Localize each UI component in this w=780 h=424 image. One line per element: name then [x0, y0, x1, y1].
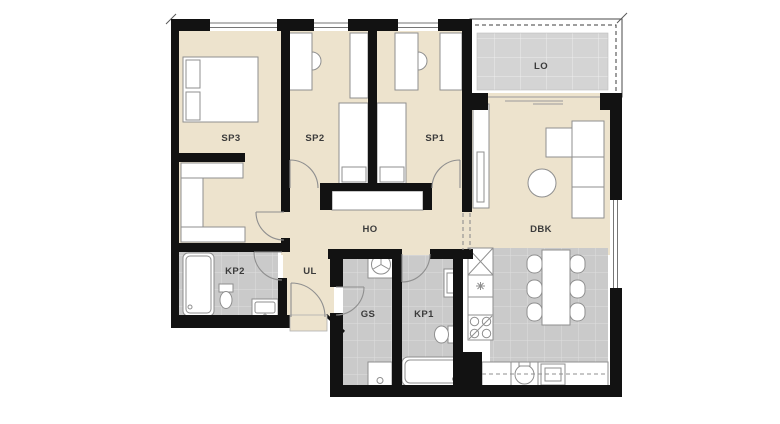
window: [398, 19, 438, 31]
wall-gs-north: [328, 249, 402, 259]
wall-kp1-north: [430, 249, 473, 259]
wall-gs-west-top: [330, 259, 343, 287]
wall-cap-right: [423, 183, 432, 210]
wall-sp3-sp2: [281, 31, 290, 212]
room-label-ul: UL: [303, 266, 316, 277]
coffee-table-icon: [528, 169, 556, 197]
room-label-ho: HO: [362, 224, 377, 235]
double-bed-icon: [183, 57, 258, 122]
room-label-sp1: SP1: [425, 133, 444, 144]
single-bed-icon: [339, 103, 368, 185]
room-label-sp3: SP3: [221, 133, 240, 144]
washing-machine-icon: [368, 362, 392, 386]
room-label-lo: LO: [534, 61, 548, 72]
wall-bedrooms-hall: [322, 183, 432, 191]
kitchen-cabinet-icon: [468, 297, 493, 315]
room-label-kp1: KP1: [414, 309, 434, 320]
entry-threshold: [290, 315, 327, 331]
wall-bottom: [330, 385, 622, 397]
dining-table-icon: [527, 250, 585, 325]
wall-bottom-kp2: [171, 315, 291, 328]
wall-sp3-south: [171, 153, 245, 162]
wall-cap-left: [320, 183, 332, 210]
wall-lo-corner-left: [462, 93, 488, 110]
wall-gs-kp1: [392, 259, 402, 385]
room-label-gs: GS: [361, 309, 376, 320]
wall-sp1-dbk: [462, 19, 472, 212]
wall-right-bottom: [610, 288, 622, 397]
wall-lo-corner-right: [600, 93, 622, 110]
wall-left: [171, 19, 179, 328]
room-label-kp2: KP2: [225, 266, 245, 277]
wardrobe-icon: [350, 33, 368, 98]
hall-closet-icon: [332, 191, 423, 210]
window: [610, 200, 622, 288]
bathroom-sink-icon: [252, 299, 278, 317]
wall-kp2-north: [171, 243, 287, 252]
toilet-icon: [219, 284, 233, 309]
wall-kp2-east: [278, 278, 287, 317]
window: [314, 19, 348, 31]
freezer-icon: [468, 275, 493, 297]
single-bed-icon: [377, 103, 406, 185]
wardrobe-icon: [440, 33, 462, 90]
wall-right-top: [610, 95, 622, 202]
floor-plan-drawing: SP3 SP2 SP1 LO HO DBK KP2 UL GS KP1: [0, 0, 780, 424]
sideboard-icon: [473, 104, 489, 208]
wall-kitchen-block: [463, 352, 482, 385]
floor-plan-page: SP3 SP2 SP1 LO HO DBK KP2 UL GS KP1: [0, 0, 780, 424]
stove-icon: [468, 315, 493, 340]
wall-sp2-sp1: [368, 31, 377, 185]
room-label-dbk: DBK: [530, 224, 552, 235]
window: [210, 19, 277, 31]
bathtub-icon: [183, 253, 214, 316]
room-label-sp2: SP2: [305, 133, 324, 144]
wall-kp1-east: [453, 249, 463, 385]
